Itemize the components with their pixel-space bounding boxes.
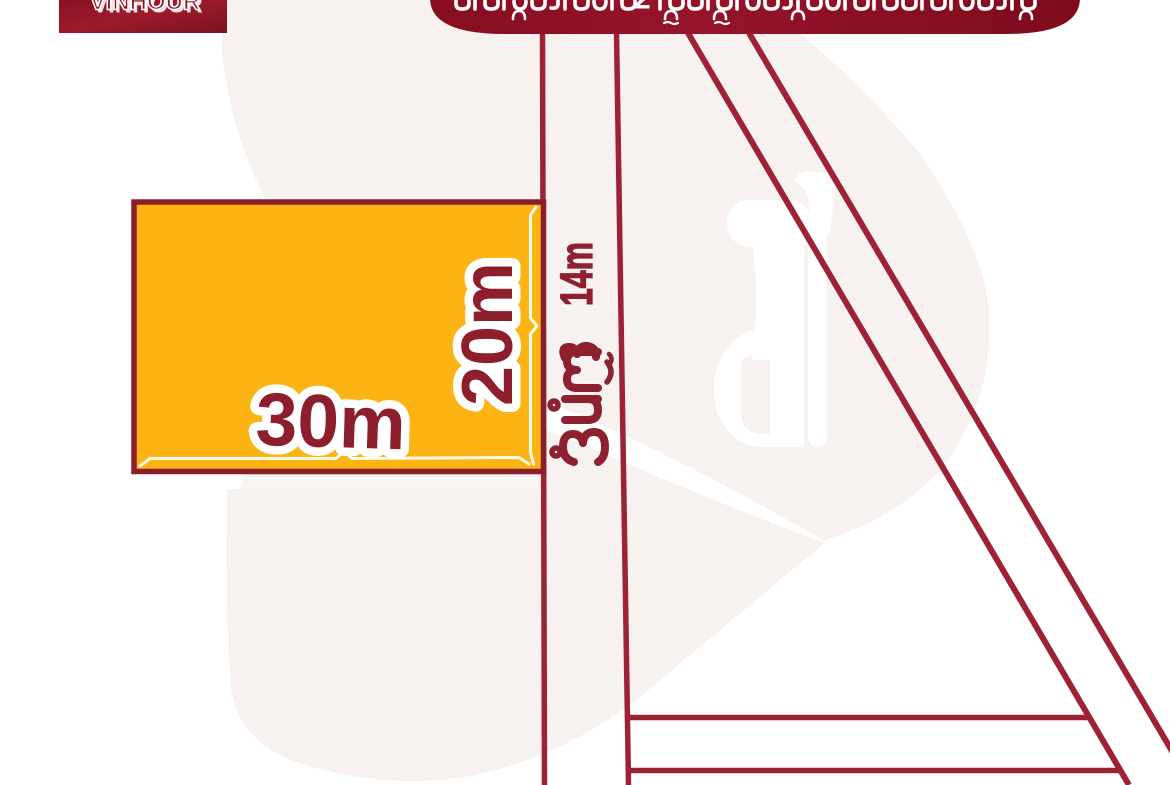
svg-text:14m: 14m: [551, 242, 602, 306]
svg-text:2: 2: [634, 0, 651, 16]
svg-text:30m: 30m: [254, 377, 407, 466]
svg-text:20m: 20m: [448, 262, 528, 406]
svg-text:VINHOUR: VINHOUR: [90, 0, 201, 16]
